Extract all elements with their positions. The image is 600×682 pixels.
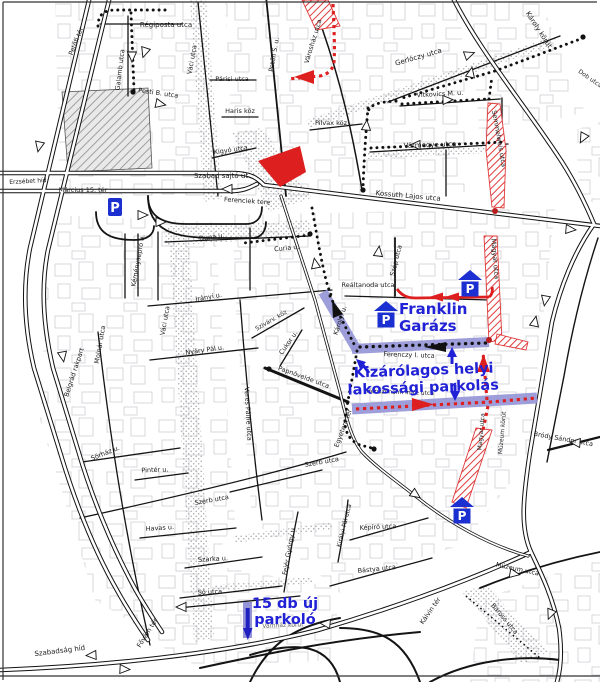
new-parking-label-line1: 15 db új [252, 596, 318, 612]
svg-text:P: P [458, 509, 467, 523]
street-label: Haris köz [225, 107, 255, 115]
svg-text:P: P [110, 201, 120, 216]
map-canvas: Régiposta utcaPetőfi térGalamb utcaVáci … [0, 0, 600, 682]
parking-map: Régiposta utcaPetőfi térGalamb utcaVáci … [0, 0, 600, 682]
street-label: Régiposta utca [140, 21, 192, 29]
street-label: Pilvax köz [315, 119, 348, 127]
street-label: Szabad sajtó út [194, 172, 248, 180]
street-label: Szabadság híd [34, 644, 86, 658]
franklin-garage-label-line2: Garázs [399, 317, 457, 335]
franklin-garage-label-line1: Franklin [399, 300, 467, 318]
street-label: Párisi utca [215, 75, 249, 83]
svg-text:P: P [382, 313, 391, 327]
street-label: Só utca [197, 587, 222, 596]
street-label: Kálvin tér [418, 596, 443, 626]
street-label: Veres Pálné utca [243, 387, 254, 441]
street-label: Szarka u. [198, 554, 228, 564]
street-label: Erzsébet híd [9, 177, 47, 186]
svg-text:P: P [466, 282, 475, 296]
street-label: Reáltanoda utca [341, 281, 394, 289]
street-label: Pintér u. [141, 466, 168, 475]
new-parking-label-line2: parkoló [254, 612, 316, 628]
street-label: Dob utca [577, 68, 600, 89]
street-label: Március 15. tér [59, 186, 108, 194]
parking-sign-icon: P [108, 198, 122, 216]
